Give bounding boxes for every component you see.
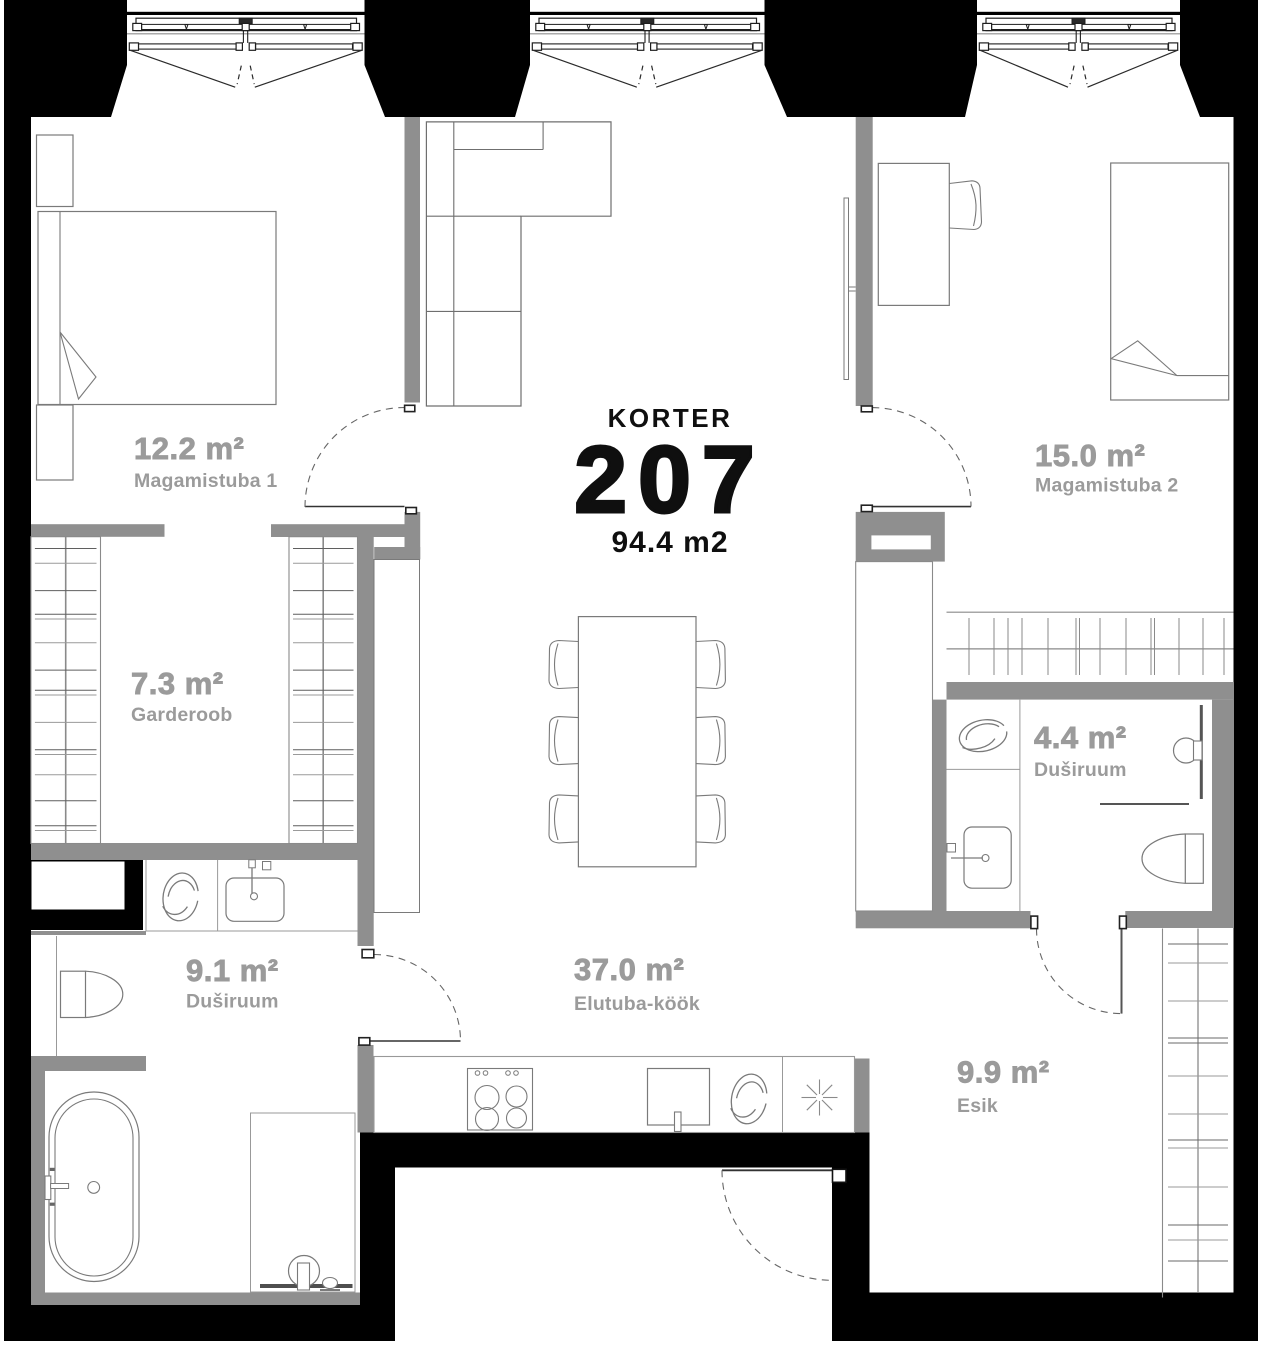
svg-text:Esik: Esik	[957, 1095, 998, 1117]
svg-text:Magamistuba 1: Magamistuba 1	[134, 470, 277, 492]
svg-text:9.1 m²: 9.1 m²	[186, 953, 279, 988]
svg-text:94.4 m2: 94.4 m2	[611, 526, 728, 559]
svg-text:Magamistuba 2: Magamistuba 2	[1035, 475, 1178, 497]
svg-text:9.9 m²: 9.9 m²	[957, 1055, 1050, 1090]
svg-text:37.0 m²: 37.0 m²	[574, 952, 684, 987]
svg-text:15.0 m²: 15.0 m²	[1035, 438, 1145, 473]
svg-text:Duširuum: Duširuum	[1034, 759, 1127, 781]
svg-text:4.4 m²: 4.4 m²	[1034, 720, 1127, 755]
svg-text:Garderoob: Garderoob	[131, 704, 232, 726]
svg-text:Duširuum: Duširuum	[186, 991, 279, 1013]
svg-text:12.2 m²: 12.2 m²	[134, 431, 244, 466]
svg-text:207: 207	[574, 427, 766, 533]
svg-text:7.3 m²: 7.3 m²	[131, 666, 224, 701]
svg-text:Elutuba-köök: Elutuba-köök	[574, 993, 700, 1015]
